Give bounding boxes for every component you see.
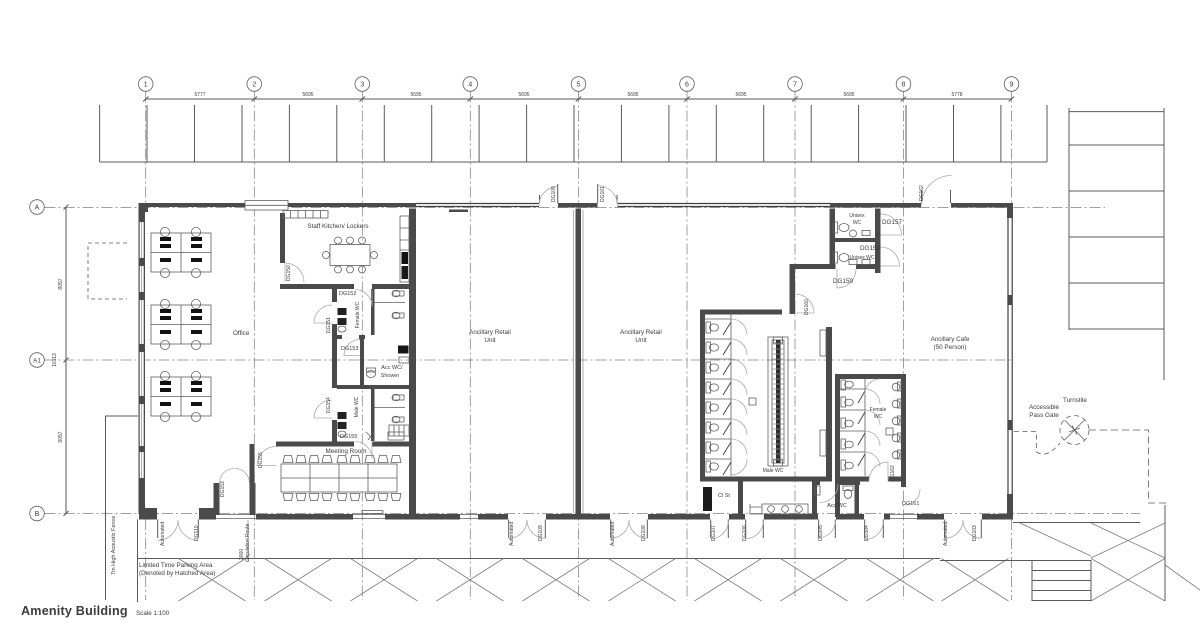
- svg-text:1: 1: [144, 82, 148, 89]
- svg-text:DG105: DG105: [818, 525, 824, 541]
- svg-text:DG153: DG153: [220, 481, 226, 497]
- svg-text:Accessible: Accessible: [1029, 404, 1060, 411]
- svg-text:DG151: DG151: [326, 317, 332, 333]
- svg-text:3: 3: [360, 82, 364, 89]
- svg-text:5695: 5695: [843, 92, 854, 98]
- svg-text:5695: 5695: [410, 92, 421, 98]
- svg-text:Circulation Route: Circulation Route: [245, 523, 251, 562]
- svg-text:16113: 16113: [52, 353, 58, 367]
- svg-text:Unisex WC: Unisex WC: [849, 255, 874, 261]
- svg-text:Ancillary Cafe: Ancillary Cafe: [931, 336, 970, 343]
- svg-text:Unit: Unit: [635, 337, 646, 344]
- svg-text:DG160: DG160: [804, 299, 810, 315]
- svg-text:Automated: Automated: [160, 522, 166, 546]
- svg-text:Unisex: Unisex: [849, 213, 865, 219]
- svg-text:Unit: Unit: [484, 337, 495, 344]
- svg-text:DG108: DG108: [641, 525, 647, 541]
- svg-text:5695: 5695: [627, 92, 638, 98]
- svg-text:9: 9: [1010, 82, 1014, 89]
- svg-text:7m High Acoustic Fence: 7m High Acoustic Fence: [111, 516, 117, 575]
- svg-text:Office: Office: [233, 330, 250, 337]
- svg-text:DG109: DG109: [538, 525, 544, 541]
- svg-text:DG154: DG154: [326, 397, 332, 413]
- svg-text:DG157: DG157: [882, 219, 902, 226]
- svg-text:WC: WC: [853, 220, 862, 226]
- svg-text:DG153: DG153: [341, 346, 358, 352]
- svg-text:Male WC: Male WC: [354, 396, 360, 417]
- svg-text:5695: 5695: [518, 92, 529, 98]
- svg-text:DG161: DG161: [902, 501, 919, 507]
- svg-text:(Denoted by Hatched Area): (Denoted by Hatched Area): [139, 570, 215, 577]
- svg-text:Meeting Room: Meeting Room: [326, 448, 367, 455]
- svg-text:4: 4: [468, 82, 472, 89]
- svg-text:A1: A1: [33, 357, 41, 364]
- svg-text:Pass Gate: Pass Gate: [1029, 412, 1059, 419]
- svg-text:Female WC: Female WC: [355, 301, 361, 328]
- svg-text:DG162: DG162: [919, 185, 925, 201]
- svg-text:Automated: Automated: [509, 522, 515, 546]
- svg-text:DG150: DG150: [286, 265, 292, 281]
- svg-text:Scale 1:100: Scale 1:100: [136, 610, 170, 617]
- svg-text:Automated: Automated: [610, 522, 616, 546]
- svg-text:DG104: DG104: [864, 525, 870, 541]
- svg-text:DG155: DG155: [340, 434, 357, 440]
- svg-text:5: 5: [577, 82, 581, 89]
- svg-text:DG158: DG158: [860, 245, 880, 252]
- svg-text:Shower: Shower: [381, 373, 400, 379]
- svg-text:6: 6: [685, 82, 689, 89]
- svg-text:DG162: DG162: [890, 465, 896, 481]
- svg-text:DG110: DG110: [194, 525, 200, 541]
- svg-text:Acc WC: Acc WC: [827, 503, 847, 509]
- svg-text:Automated: Automated: [943, 522, 949, 546]
- svg-text:5695: 5695: [302, 92, 313, 98]
- svg-text:8057: 8057: [58, 431, 64, 442]
- svg-text:Turnstile: Turnstile: [1063, 397, 1087, 404]
- svg-text:B: B: [35, 511, 40, 518]
- svg-text:8: 8: [902, 82, 906, 89]
- svg-text:DG152: DG152: [339, 291, 356, 297]
- svg-text:DG103: DG103: [972, 525, 978, 541]
- svg-text:DG107: DG107: [711, 525, 717, 541]
- svg-text:DG159: DG159: [833, 278, 853, 285]
- svg-text:8057: 8057: [58, 278, 64, 289]
- svg-text:Amenity Building: Amenity Building: [21, 604, 128, 618]
- svg-text:2: 2: [252, 82, 256, 89]
- svg-text:Female: Female: [870, 407, 887, 413]
- svg-text:Male WC: Male WC: [763, 468, 784, 474]
- svg-text:5778: 5778: [951, 92, 962, 98]
- svg-text:DG109: DG109: [551, 186, 557, 202]
- svg-text:WC: WC: [874, 414, 883, 420]
- svg-text:Limited Time Parking Area: Limited Time Parking Area: [139, 562, 213, 569]
- svg-text:7: 7: [793, 82, 797, 89]
- svg-text:DG101: DG101: [600, 186, 606, 202]
- svg-text:Ancillary Retail: Ancillary Retail: [469, 329, 511, 336]
- svg-text:Ancillary Retail: Ancillary Retail: [620, 329, 662, 336]
- svg-text:A: A: [35, 205, 40, 212]
- svg-text:DG155: DG155: [258, 452, 264, 468]
- svg-text:(50 Person): (50 Person): [934, 344, 967, 351]
- svg-text:Acc WC/: Acc WC/: [381, 365, 403, 371]
- svg-text:Cl St: Cl St: [718, 493, 730, 499]
- svg-text:5777: 5777: [194, 92, 205, 98]
- svg-text:5695: 5695: [735, 92, 746, 98]
- svg-text:DG106: DG106: [742, 525, 748, 541]
- svg-text:Staff Kitchen/ Lockers: Staff Kitchen/ Lockers: [307, 223, 368, 230]
